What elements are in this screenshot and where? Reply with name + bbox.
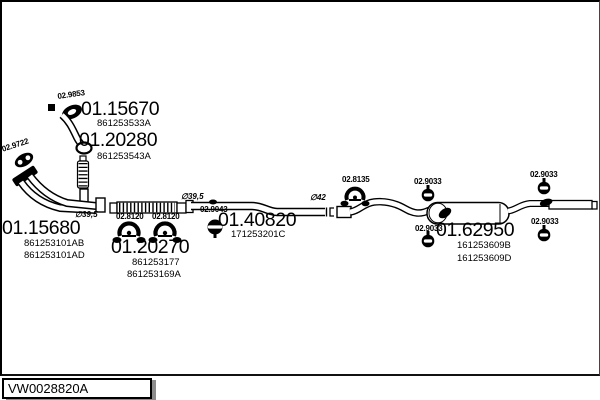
flex-hanger-piece bbox=[78, 161, 89, 188]
part5-ref: 171253201C bbox=[231, 230, 285, 240]
bolt-square-icon bbox=[48, 104, 55, 111]
fitting-hanger-label: 02.9033 bbox=[415, 225, 443, 233]
tail-pipe bbox=[508, 197, 597, 211]
fitting-hanger-label: 02.9033 bbox=[530, 171, 558, 179]
diameter-label: ∅42 bbox=[310, 194, 326, 202]
fitting-clamp-label: 02.8135 bbox=[342, 176, 370, 184]
tailpipe-end-bracket bbox=[592, 202, 597, 210]
fitting-mount-label: 02.9043 bbox=[200, 206, 228, 214]
part4-ref2: 861253169A bbox=[127, 270, 181, 280]
rubber-hanger-icon bbox=[422, 185, 435, 201]
fitting-hanger-label: 02.9033 bbox=[414, 178, 442, 186]
part5-number: 01.40820 bbox=[218, 211, 296, 231]
part4-number: 01.20270 bbox=[111, 238, 189, 258]
part1-ref: 861253533A bbox=[97, 119, 151, 129]
part2-number: 01.20280 bbox=[79, 131, 157, 151]
part3-ref1: 861253101AB bbox=[24, 239, 84, 249]
part2-ref: 861253543A bbox=[97, 152, 151, 162]
exhaust-diagram-drawing bbox=[0, 0, 600, 376]
rubber-hanger-icon bbox=[422, 231, 435, 247]
exhaust-parts-diagram-page: 01.15670 861253533A 01.20280 861253543A … bbox=[0, 0, 600, 400]
rubber-hanger-icon bbox=[538, 178, 551, 194]
part4-ref1: 861253177 bbox=[132, 258, 180, 268]
part6-ref2: 161253609D bbox=[457, 254, 511, 264]
rubber-hanger-icon bbox=[538, 225, 551, 241]
fitting-hanger-label: 02.9033 bbox=[531, 218, 559, 226]
catalog-code: VW0028820A bbox=[4, 380, 150, 397]
fitting-clamp-label: 02.8120 bbox=[152, 213, 180, 221]
pipe-end-bracket bbox=[330, 208, 334, 216]
part6-ref1: 161253609B bbox=[457, 241, 511, 251]
diameter-label: ∅39,5 bbox=[181, 193, 204, 201]
part3-ref2: 861253101AD bbox=[24, 251, 85, 261]
catalog-code-box: VW0028820A bbox=[2, 378, 152, 399]
part6-number: 01.62950 bbox=[436, 221, 514, 241]
fitting-clamp-label: 02.8120 bbox=[116, 213, 144, 221]
omega-clamp-icon bbox=[341, 189, 370, 207]
part3-number: 01.15680 bbox=[2, 219, 80, 239]
diameter-label: ∅39,5 bbox=[75, 211, 98, 219]
weld-nub bbox=[209, 200, 217, 205]
front-pipe-assembly bbox=[12, 150, 105, 212]
pipe-joint-sleeve bbox=[337, 207, 351, 218]
part1-number: 01.15670 bbox=[81, 100, 159, 120]
